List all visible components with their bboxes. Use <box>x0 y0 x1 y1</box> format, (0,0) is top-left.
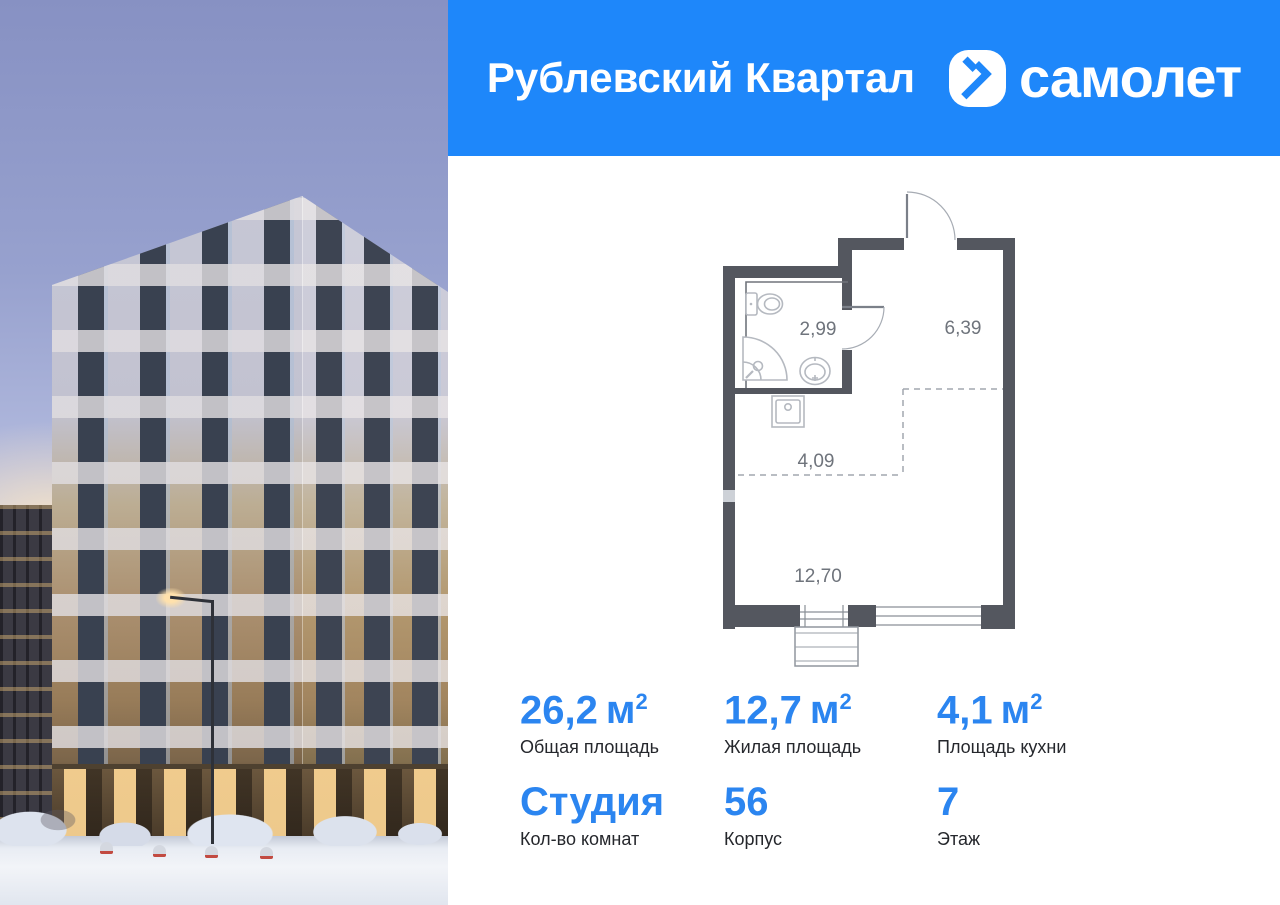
wall-joint <box>723 490 735 502</box>
stat-floor-label: Этаж <box>937 829 1137 849</box>
stat-total-area: 26,2м2 Общая площадь <box>520 682 720 757</box>
room-area-hallway: 6,39 <box>945 318 982 339</box>
stat-building-value: 56 <box>724 782 924 822</box>
entry-door <box>907 192 955 240</box>
bathroom-door <box>842 307 884 349</box>
shower-icon <box>743 337 787 380</box>
stat-floor: 7 Этаж <box>937 782 1137 849</box>
stat-living-area: 12,7м2 Жилая площадь <box>724 682 924 757</box>
bollard <box>153 845 166 857</box>
building-photo <box>0 0 448 905</box>
stat-building-label: Корпус <box>724 829 924 849</box>
stat-building: 56 Корпус <box>724 782 924 849</box>
stat-kitchen-area: 4,1м2 Площадь кухни <box>937 682 1137 757</box>
bollard <box>260 847 273 859</box>
balcony <box>795 627 858 666</box>
floor-plan: 2,99 6,39 4,09 12,70 <box>715 180 1025 680</box>
stat-kitchen-area-value: 4,1м2 <box>937 682 1137 730</box>
samolet-arrow-icon <box>949 50 1006 107</box>
room-area-kitchen: 4,09 <box>798 451 835 472</box>
bollard <box>100 842 113 854</box>
project-title: Рублевский Квартал <box>487 54 915 102</box>
samolet-wordmark: самолет <box>1019 50 1241 106</box>
stat-rooms: Студия Кол-во комнат <box>520 782 720 849</box>
street-lamp <box>211 600 214 844</box>
room-area-living: 12,70 <box>794 566 842 587</box>
room-area-bathroom: 2,99 <box>800 319 837 340</box>
balcony-door <box>800 605 848 627</box>
stat-kitchen-area-label: Площадь кухни <box>937 737 1137 757</box>
building-corner-edge <box>302 196 303 840</box>
toilet-icon <box>746 293 783 315</box>
stat-floor-value: 7 <box>937 782 1137 822</box>
snowy-bushes <box>0 786 448 846</box>
stat-total-area-value: 26,2м2 <box>520 682 720 730</box>
sink-icon <box>800 357 830 385</box>
header: Рублевский Квартал самолет <box>448 0 1280 156</box>
stat-total-area-label: Общая площадь <box>520 737 720 757</box>
stat-rooms-label: Кол-во комнат <box>520 829 720 849</box>
samolet-logo: самолет <box>949 50 1241 107</box>
stat-living-area-label: Жилая площадь <box>724 737 924 757</box>
stat-rooms-value: Студия <box>520 782 720 822</box>
kitchen-sink-icon <box>772 396 804 427</box>
snow-ground <box>0 836 448 905</box>
window <box>876 607 981 625</box>
stat-living-area-value: 12,7м2 <box>724 682 924 730</box>
bollard <box>205 846 218 858</box>
